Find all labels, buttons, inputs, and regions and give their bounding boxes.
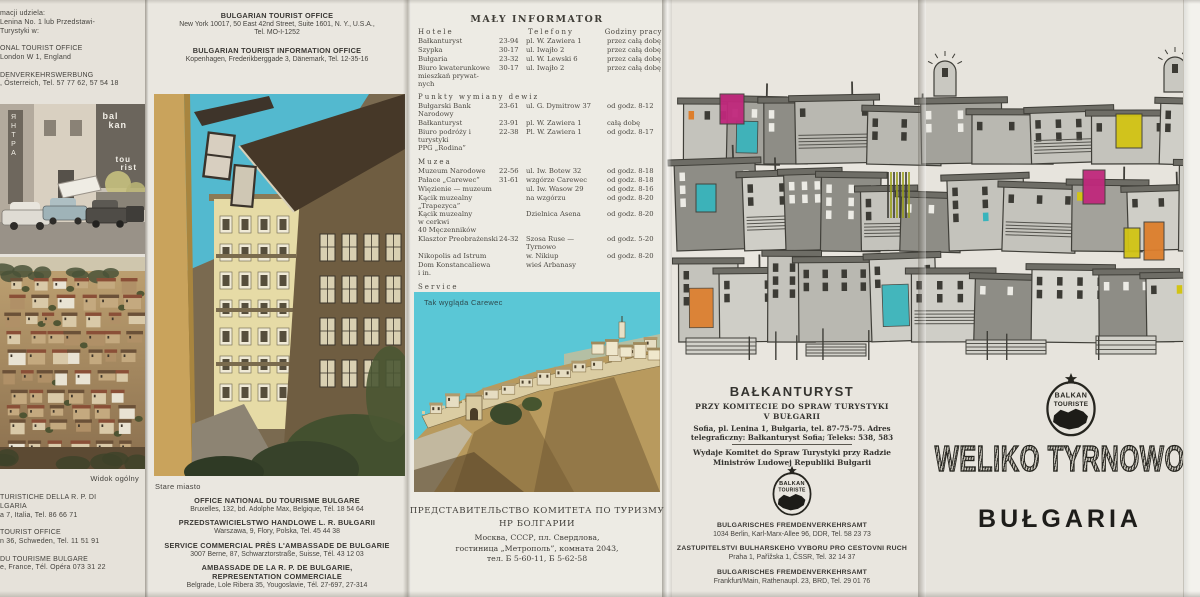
office-lines: Belgrade, Lole Ribera 35, Yougoslavie, T… bbox=[149, 582, 405, 591]
fence bbox=[966, 340, 1046, 354]
cover-subtitle: BUŁGARIA bbox=[924, 505, 1196, 534]
office-title: AMBASSADE DE LA R. P. DE BULGARIE, REPRE… bbox=[149, 564, 405, 582]
informator-row: Bałkanturyst23-91pl. W. Zawiera 1całą do… bbox=[418, 120, 662, 128]
foreign-office-list: BULGARISCHES FREMDENVERKEHRSAMT 1034 Ber… bbox=[668, 522, 916, 592]
office-address: BULGARISCHES FREMDENVERKEHRSAMT 1034 Ber… bbox=[668, 522, 916, 539]
tsarevets-photo: Tak wygląda Carewec bbox=[414, 292, 660, 492]
informator-row: Kącik muzealny w cerkwi 40 MęczennikówDz… bbox=[418, 211, 662, 235]
header-hours: Godziny pracy bbox=[604, 28, 662, 36]
office-lines: New York 10017, 50 East 42nd Street, Sui… bbox=[153, 21, 401, 38]
informator-table: Hotele Telefony Godziny pracy Bałkantury… bbox=[418, 28, 662, 318]
office-lines: 3007 Berne, 87, Schwarztorstraße, Suisse… bbox=[149, 551, 405, 560]
informator-header: Hotele Telefony Godziny pracy bbox=[418, 28, 662, 36]
office-address: ZASTUPITELSTVI BULHARSKEHO VYBORU PRO CE… bbox=[668, 545, 916, 562]
balkan-tourist-sign-bottom: tou rist bbox=[116, 156, 137, 173]
informator-row: Biuro podróży i turystyki PPG „Rodina”22… bbox=[418, 129, 662, 153]
office-title: BULGARIAN TOURIST OFFICE bbox=[153, 12, 401, 21]
panel-informator: MAŁY INFORMATOR Hotele Telefony Godziny … bbox=[408, 0, 666, 597]
divider-line bbox=[732, 444, 852, 445]
office-address: BULGARIAN TOURIST INFORMATION OFFICE Kop… bbox=[153, 47, 401, 64]
office-title: OFFICE NATIONAL DU TOURISME BULGARE bbox=[149, 497, 405, 506]
office-address: SERVICE COMMERCIAL PRÈS L'AMBASSADE DE B… bbox=[149, 542, 405, 559]
tsarevets-art bbox=[414, 292, 660, 492]
office-title: SERVICE COMMERCIAL PRÈS L'AMBASSADE DE B… bbox=[149, 542, 405, 551]
office-title: PRZEDSTAWICIELSTWO HANDLOWE L. R. BUŁGAR… bbox=[149, 519, 405, 528]
svg-text:BALKAN: BALKAN bbox=[779, 481, 805, 487]
fence bbox=[1096, 336, 1156, 354]
office-lines: Kopenhagen, Frederikberggade 3, Dänemark… bbox=[153, 56, 401, 65]
office-address: AMBASSADE DE LA R. P. DE BULGARIE, REPRE… bbox=[149, 564, 405, 590]
informator-row: Bułgaria23-32ul. W. Lewski 6przez całą d… bbox=[418, 56, 662, 64]
balkanturyst-address: Sofia, pl. Lenina 1, Bułgaria, tel. 87-7… bbox=[666, 424, 918, 443]
panel-contacts-left: macji udziela: Lenina No. 1 lub Przedsta… bbox=[0, 0, 147, 597]
header-phones: Telefony bbox=[498, 28, 604, 36]
bottom-office-list: OFFICE NATIONAL DU TOURISME BULGARE Brux… bbox=[149, 497, 405, 595]
svg-text:TOURISTE: TOURISTE bbox=[1054, 401, 1089, 408]
russian-subtitle: НР БОЛГАРИИ bbox=[408, 519, 666, 529]
office-lines: 1034 Berlin, Karl-Marx-Allee 96, DDR, Te… bbox=[668, 531, 916, 540]
old-town-panorama-photo bbox=[0, 257, 145, 469]
brochure-sheet: macji udziela: Lenina No. 1 lub Przedsta… bbox=[0, 0, 1200, 597]
office-lines: Bruxelles, 132, bd. Adolphe Max, Belgiqu… bbox=[149, 506, 405, 515]
panel-street-photo: BULGARIAN TOURIST OFFICE New York 10017,… bbox=[147, 0, 408, 597]
informator-row: Bałkanturyst23-94pl. W. Zawiera 1przez c… bbox=[418, 38, 662, 46]
svg-text:BALKAN: BALKAN bbox=[1055, 392, 1088, 399]
townscape-illustration bbox=[666, 46, 1200, 366]
sign-line: kan bbox=[102, 121, 127, 130]
informator-row: Biuro kwaterunkowe mieszkań prywat- nych… bbox=[418, 65, 662, 89]
fence bbox=[806, 344, 866, 356]
tsarevets-caption: Tak wygląda Carewec bbox=[424, 298, 503, 307]
old-street-photo bbox=[154, 94, 405, 476]
svg-text:TOURISTE: TOURISTE bbox=[778, 488, 806, 494]
balkanturyst-subtitle: PRZY KOMITECIE DO SPRAW TURYSTYKI V BUŁG… bbox=[666, 402, 918, 421]
balkanturyst-title: BAŁKANTURYST bbox=[666, 384, 918, 399]
fence bbox=[686, 338, 756, 354]
balkan-tourist-sign-top: bal kan bbox=[102, 112, 127, 131]
cover-title: WELIKO TYRNOWO bbox=[924, 444, 1196, 475]
informator-section-title: Punkty wymiany dewiz bbox=[418, 93, 662, 101]
panorama-caption: Widok ogólny bbox=[90, 474, 139, 483]
russian-title: ПРЕДСТАВИТЕЛЬСТВО КОМИТЕТА ПО ТУРИЗМУ bbox=[408, 506, 666, 516]
office-address: OFFICE NATIONAL DU TOURISME BULGARE Brux… bbox=[149, 497, 405, 514]
street-caption: Stare miasto bbox=[155, 482, 201, 491]
informator-rows: Bałkanturyst23-94pl. W. Zawiera 1przez c… bbox=[418, 38, 662, 317]
informator-section-title: Muzea bbox=[418, 158, 662, 166]
informator-row: Dom Konstancaliewa i in.wieś Arbanasy bbox=[418, 262, 662, 278]
dome-tower bbox=[928, 51, 962, 96]
office-address: BULGARIAN TOURIST OFFICE New York 10017,… bbox=[153, 12, 401, 38]
office-address: PRZEDSTAWICIELSTWO HANDLOWE L. R. BUŁGAR… bbox=[149, 519, 405, 536]
panorama-art bbox=[0, 257, 145, 469]
paper-edge-top bbox=[0, 0, 1200, 4]
informator-row: Klasztor Preobrażenski24-32Szosa Ruse — … bbox=[418, 236, 662, 252]
informator-row: Szypka30-17ul. Iwajło 2przez całą dobę bbox=[418, 47, 662, 55]
sign-line: rist bbox=[116, 164, 137, 172]
russian-office-block: ПРЕДСТАВИТЕЛЬСТВО КОМИТЕТА ПО ТУРИЗМУ НР… bbox=[408, 506, 666, 565]
informator-row: Bułgarski Bank Narodowy23-61ul. G. Dymit… bbox=[418, 103, 662, 119]
paper-edge-bottom bbox=[0, 591, 1200, 597]
hotel-vertical-sign: ЯНТРА bbox=[10, 114, 17, 159]
paper-edge-right bbox=[1183, 0, 1200, 597]
balkan-touriste-logo-small: BALKANTOURISTE bbox=[769, 465, 815, 517]
street-art bbox=[154, 94, 405, 476]
house bbox=[996, 181, 1083, 253]
office-title: BULGARISCHES FREMDENVERKEHRSAMT bbox=[668, 522, 916, 531]
office-lines: Frankfurt/Main, Rathenaupl. 23, BRD, Tel… bbox=[668, 578, 916, 587]
house bbox=[792, 256, 878, 342]
russian-address: Москва, СССР, пл. Свердлова, гостиница „… bbox=[408, 533, 666, 565]
informator-row: Nikopolis ad Istrumw. Nikiupod godz. 8-2… bbox=[418, 253, 662, 261]
office-lines: Warszawa, 9, Flory, Polska, Tel. 45 44 3… bbox=[149, 528, 405, 537]
informator-row: Muzeum Narodowe22-56ul. Iw. Botew 32od g… bbox=[418, 168, 662, 176]
informator-row: Pałace „Carewec”31-61wzgórze Carewecod g… bbox=[418, 177, 662, 185]
contact-info-bottom: TURISTICHE DELLA R. P. DI LGARIA a 7, It… bbox=[0, 494, 146, 573]
hotel-yantra-photo: ЯНТРА bal kan tou rist bbox=[0, 104, 145, 254]
balkan-touriste-logo-large: BALKANTOURISTE bbox=[1042, 372, 1100, 438]
cover-title-text: WELIKO TYRNOWO bbox=[935, 439, 1185, 481]
office-title: ZASTUPITELSTVI BULHARSKEHO VYBORU PRO CE… bbox=[668, 545, 916, 554]
informator-row: Więzienie — muzeumul. Iw. Wasow 29od god… bbox=[418, 186, 662, 194]
office-lines: Praha 1, Pařížska 1, ČSSR, Tel. 32 14 37 bbox=[668, 554, 916, 563]
header-hotels: Hotele bbox=[418, 28, 498, 36]
informator-title: MAŁY INFORMATOR bbox=[408, 14, 666, 25]
informator-row: Kącik muzealny „Trapezyca”na wzgórzuod g… bbox=[418, 195, 662, 211]
office-title: BULGARISCHES FREMDENVERKEHRSAMT bbox=[668, 569, 916, 578]
contact-info-top: macji udziela: Lenina No. 1 lub Przedsta… bbox=[0, 10, 146, 89]
informator-section-title: Service bbox=[418, 283, 662, 291]
office-title: BULGARIAN TOURIST INFORMATION OFFICE bbox=[153, 47, 401, 56]
office-address: BULGARISCHES FREMDENVERKEHRSAMT Frankfur… bbox=[668, 569, 916, 586]
top-office-list: BULGARIAN TOURIST OFFICE New York 10017,… bbox=[153, 12, 401, 73]
